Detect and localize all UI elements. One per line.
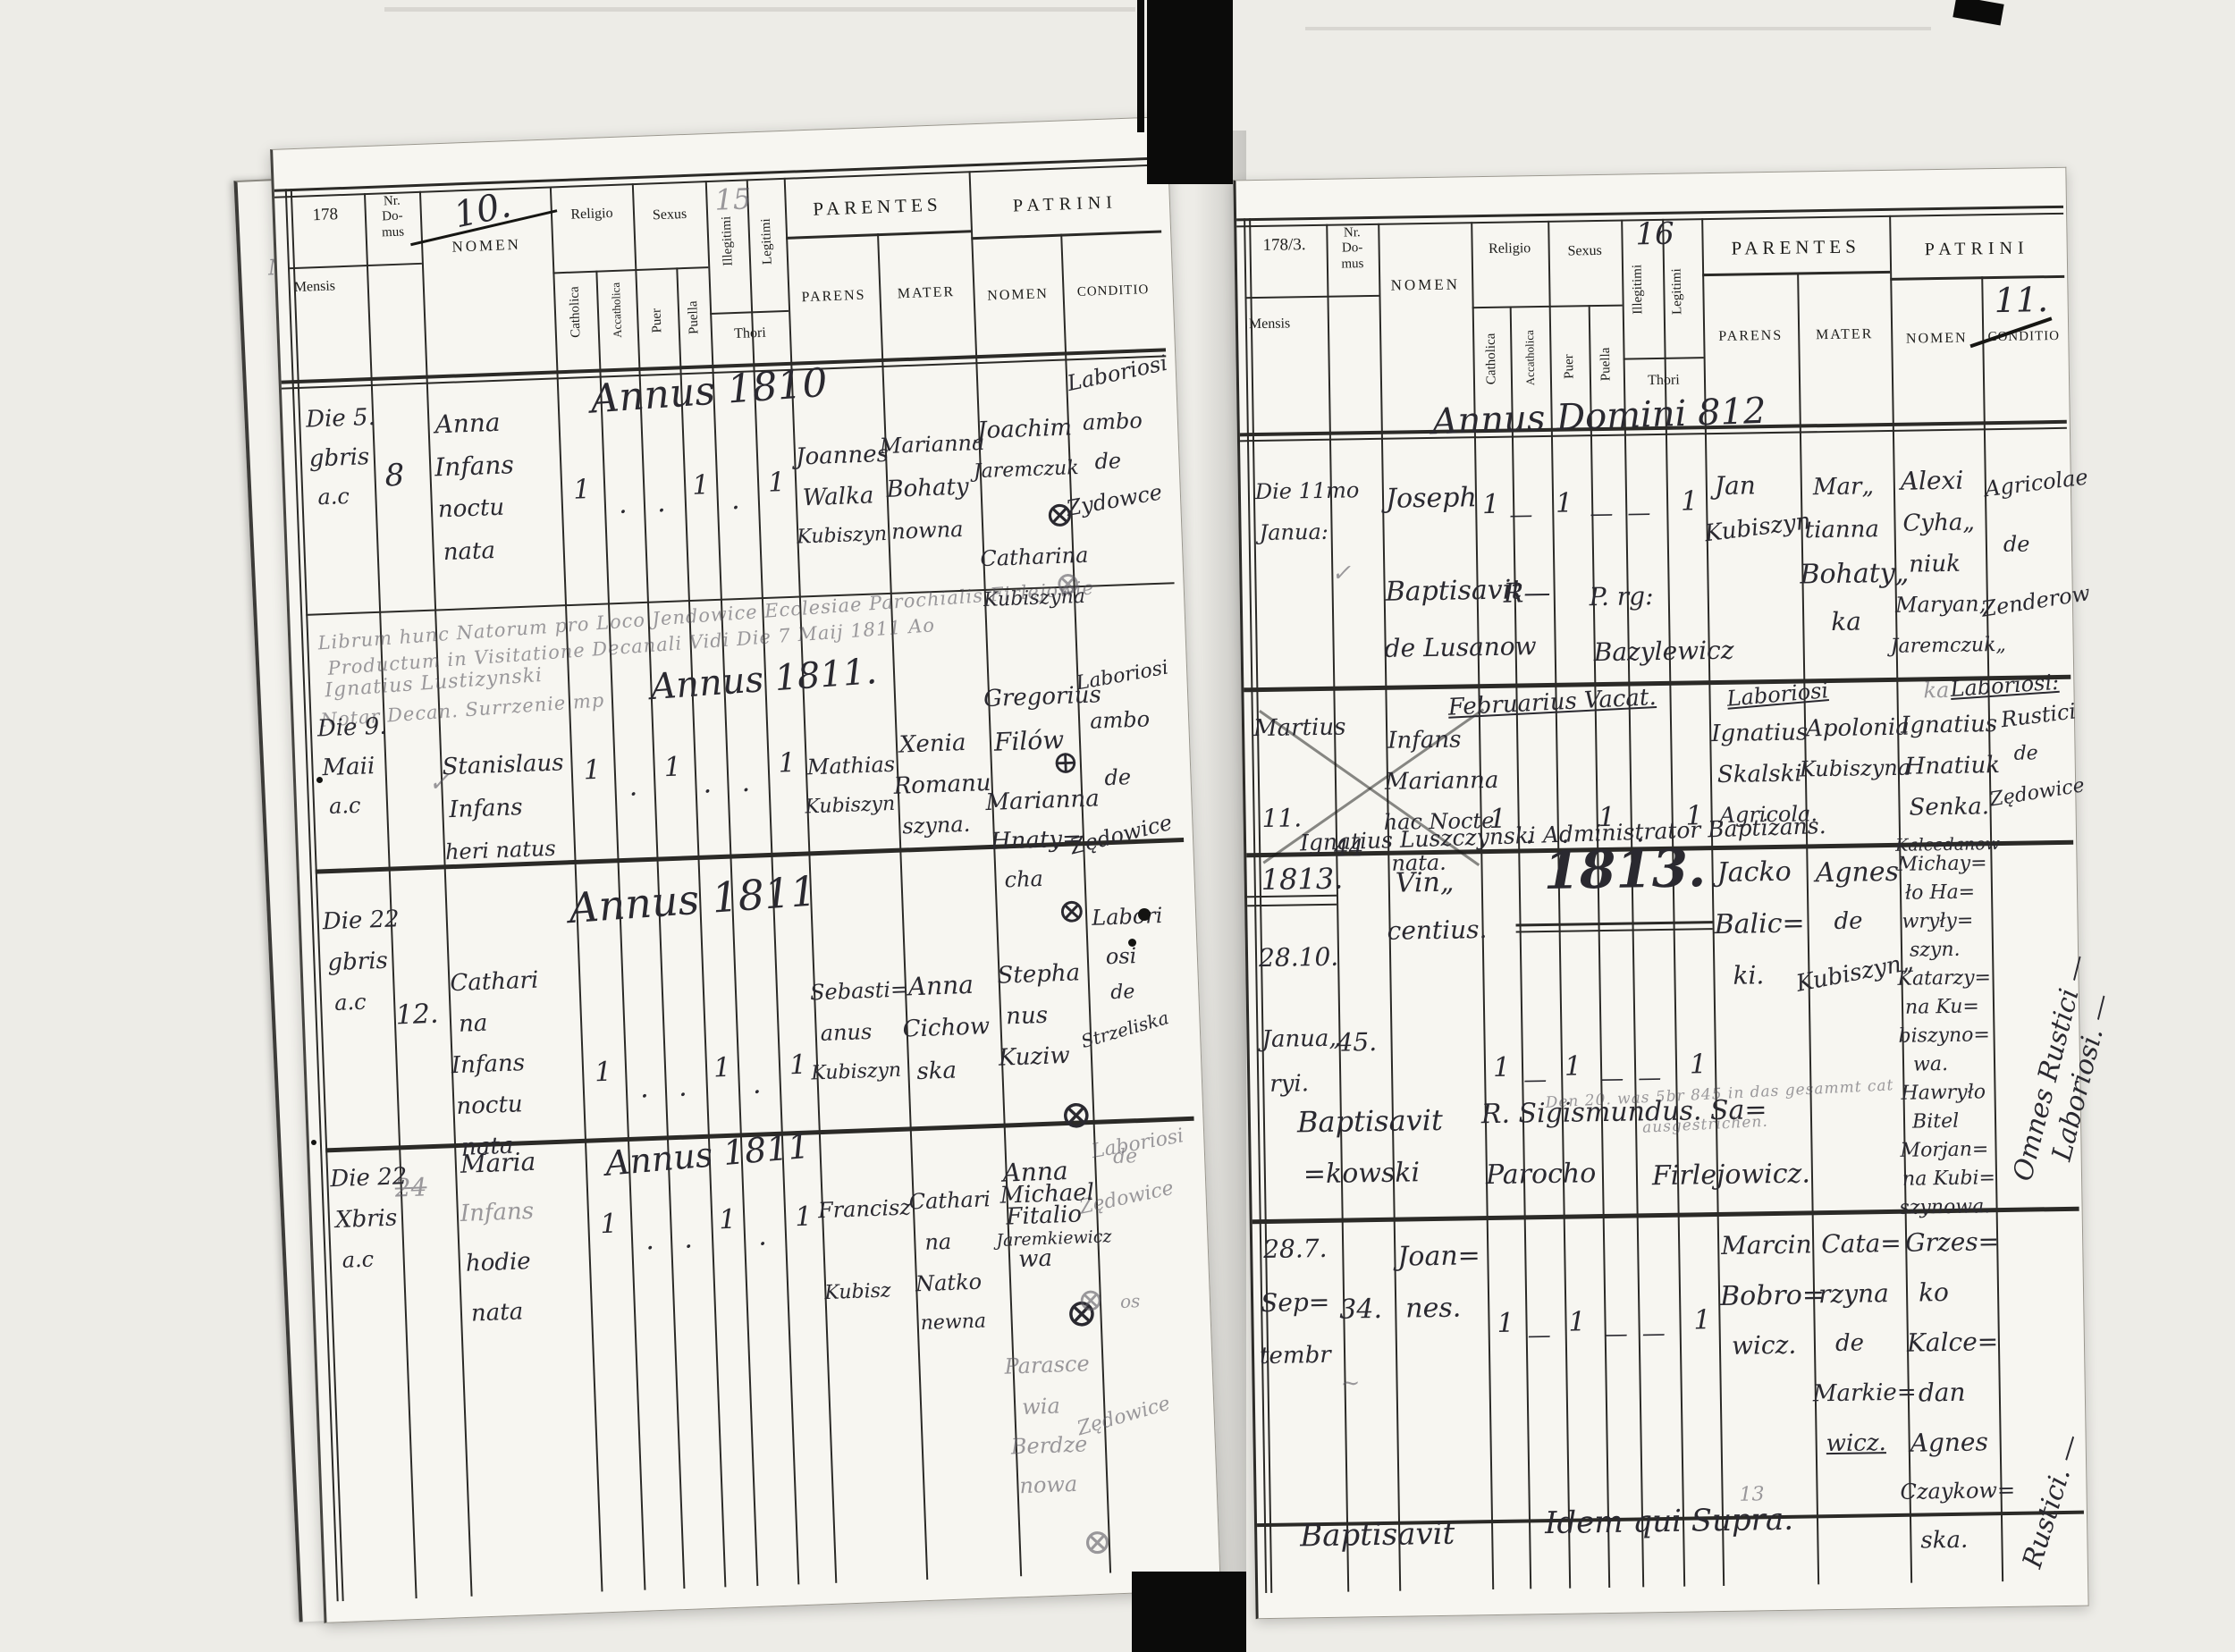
child-name: nata [471, 1300, 524, 1325]
tick-mark: — [1627, 501, 1650, 525]
tick-mark: 1 [1690, 1051, 1708, 1078]
year-heading: Annus 1811 [603, 1129, 811, 1181]
conditio-note: osi [1105, 945, 1136, 967]
tick-mark: — [1590, 502, 1613, 526]
child-name: Anna [434, 410, 501, 438]
entry-date: Maii [322, 754, 375, 780]
conditio-note: Laboriosi [1090, 1126, 1185, 1162]
child-name: Cathari [450, 969, 539, 996]
mother-name: Anna [907, 973, 974, 1000]
mother-name: szyna. [902, 813, 971, 838]
spine-black-strip-top [1147, 0, 1233, 184]
house-number: 8 [384, 460, 405, 492]
father-name: anus [820, 1021, 872, 1044]
month-vacat-note: Februarius Vacat. [1447, 686, 1657, 720]
godparent-name: Morjan= [1900, 1140, 1988, 1161]
tick-mark: . [758, 1223, 768, 1250]
tick-mark: — [1523, 1068, 1547, 1091]
tick-mark: . [730, 487, 740, 514]
entry-date: 11. [1261, 805, 1302, 831]
mother-name: tianna [1804, 518, 1879, 542]
godparent-name: Berdze [1010, 1433, 1087, 1457]
child-name: hodie [465, 1250, 531, 1276]
priest-note: de Lusanow [1384, 634, 1536, 662]
godparent-name: cha [1004, 868, 1043, 891]
father-name: Sebasti= [810, 978, 909, 1003]
entry-date: a.c [329, 795, 361, 817]
entry-date: 28.7. [1263, 1236, 1328, 1262]
tick-mark: — [1638, 1066, 1661, 1090]
mother-name: ska [916, 1059, 957, 1084]
conditio-note: ambo [1090, 708, 1151, 731]
child-name: Vin„ [1396, 870, 1455, 898]
conditio-note: Labori [1092, 905, 1163, 929]
crossed-circle-mark: ⊗ [1076, 1285, 1104, 1318]
tick-mark: — [1528, 1324, 1551, 1347]
year-heading: Annus 1811 [568, 870, 818, 929]
conditio-note: Zędowice [1075, 1395, 1173, 1440]
father-name: Jan [1715, 473, 1756, 499]
father-name: Bobro= [1720, 1282, 1825, 1311]
mother-name: Cichow [902, 1015, 990, 1041]
priest-note: P. rg: [1590, 584, 1654, 610]
crossed-circle-mark: ⊗ [1082, 1523, 1113, 1560]
entry-date: Die 5. [306, 406, 376, 432]
left-page-ink-layer: 10.15Annus 1810Die 5.gbrisa.c8AnnaInfans… [273, 117, 1220, 1622]
mother-name: newna [920, 1311, 986, 1334]
priest-note: Baptisavit [1300, 1519, 1455, 1552]
entry-date: Die 11mo [1255, 479, 1360, 502]
godparent-name: biszyno= [1898, 1025, 1990, 1047]
entry-date: Janua„ [1261, 1027, 1341, 1051]
entry-date: Die 22 [322, 907, 400, 933]
conditio-note: de [1094, 450, 1121, 472]
tick-mark: 1 [1681, 488, 1699, 515]
register-right-page: 178/3. Nr. Do- mus Religio Sexus PARENTE… [1233, 167, 2088, 1619]
year-heading: Annus Domini 812 [1431, 393, 1767, 440]
entry-date: a.c [342, 1249, 374, 1271]
godparent-name: Stepha [997, 961, 1080, 987]
child-name: heri natus [445, 838, 556, 864]
tick-mark: — [1642, 1322, 1666, 1345]
conditio-note: de [1110, 982, 1135, 1003]
mother-name: Xenia [899, 731, 966, 757]
godparent-name: Joachim [977, 416, 1073, 442]
mother-name: de [1834, 909, 1862, 932]
stray-text: ~ [1340, 1371, 1360, 1395]
priest-note: =kowski [1303, 1159, 1421, 1188]
entry-date: Sep= [1261, 1290, 1330, 1316]
tick-mark: 1 [719, 1207, 737, 1235]
entry-date: gbris [308, 445, 369, 470]
ink-dot [311, 1140, 316, 1145]
child-name: Joan= [1397, 1243, 1480, 1270]
godparent-name: nowa [1019, 1473, 1078, 1496]
mother-name: Cata= [1821, 1231, 1902, 1257]
tick-mark: . [684, 1226, 694, 1252]
mother-name: Kubiszyna [1800, 757, 1911, 780]
child-name: nata [443, 539, 495, 564]
father-name: Kubiszyn [811, 1061, 901, 1084]
tick-mark: . [656, 490, 666, 517]
father-name: Kubiszyn [1703, 510, 1811, 545]
father-name: Jacko [1716, 859, 1791, 887]
page-mark: 13 [1739, 1485, 1764, 1504]
tick-mark: — [1509, 503, 1532, 527]
conditio-note: de [1104, 766, 1131, 788]
father-name: Kubiszyn [805, 795, 895, 818]
entry-date: a.c [334, 991, 367, 1014]
priest-note: R— [1503, 580, 1550, 608]
entry-date: 28.10. [1259, 945, 1338, 971]
conditio-note: os [1120, 1292, 1141, 1311]
tick-mark: 1 [713, 1055, 731, 1083]
father-name: Joannes [796, 442, 890, 469]
folio-number-handwritten: 16 [1635, 219, 1674, 250]
entry-date: a.c [317, 485, 350, 508]
child-name: Stanislaus [442, 751, 564, 779]
godparent-name: Ignatius [1901, 712, 1997, 737]
child-name: Infans [460, 1200, 534, 1226]
scan-smudge [384, 7, 1135, 12]
child-name: noctu [456, 1092, 523, 1118]
father-name: Ignatius [1711, 721, 1808, 746]
child-name: Maria [460, 1150, 536, 1177]
mother-name: Apolonia [1806, 716, 1910, 741]
godparent-name: Hnatiuk [1905, 754, 2001, 779]
child-name: noctu [438, 496, 505, 522]
tick-mark: 1 [1493, 1055, 1511, 1082]
house-number: 45. [1337, 1030, 1377, 1056]
godparent-name: szyn. [1910, 940, 1961, 961]
mother-name: Romanu [893, 771, 991, 798]
check-mark: ✓ [1331, 561, 1351, 585]
godparent-name: ska. [1920, 1529, 1968, 1553]
tick-mark: 1 [778, 750, 796, 778]
godparent-name: Marianna [985, 787, 1100, 814]
godparent-name: Jaremczuk [973, 459, 1078, 482]
tick-mark: 1 [1556, 490, 1573, 517]
father-name: Marcin [1721, 1232, 1812, 1259]
godparent-name: szynowa. [1899, 1197, 1990, 1218]
mother-name: Natko [915, 1271, 983, 1295]
father-name: Walka [802, 484, 873, 510]
ink-dot [1138, 908, 1151, 921]
entry-date: tembr [1260, 1344, 1331, 1368]
tick-mark: . [628, 773, 638, 800]
spine-black-line-top [1137, 0, 1144, 132]
mother-name: Agnes [1815, 859, 1899, 887]
godparent-name: nus [1006, 1004, 1049, 1029]
child-name: Infans [449, 796, 523, 822]
priest-note: Idem qui Supra. [1545, 1504, 1793, 1538]
tick-mark: 1 [1568, 1309, 1586, 1336]
conditio-note: Rustici [2000, 700, 2078, 730]
house-number-crossed: 24 [394, 1175, 427, 1201]
child-name: nes. [1405, 1295, 1461, 1323]
entry-date: gbris [327, 949, 388, 974]
father-name: Kubisz [824, 1281, 891, 1303]
godparent-name: Michay= [1897, 854, 1986, 875]
child-name: na [459, 1012, 488, 1036]
father-name: Skalski [1717, 763, 1802, 787]
godparent-name: Jaremkiewicz [996, 1228, 1112, 1250]
godparent-name: niuk [1909, 552, 1961, 577]
crossed-circle-mark: ⊗ [1054, 568, 1082, 601]
godparent-name: Bitel [1912, 1112, 1959, 1133]
right-page-ink-layer: 1611.Annus Domini 812Die 11moJanua:✓Jose… [1236, 168, 2087, 1618]
house-number: 34. [1339, 1296, 1382, 1324]
tick-mark: 1 [595, 1059, 612, 1087]
year-heading: Annus 1810 [589, 364, 829, 420]
year-heading: 1813. [1543, 842, 1707, 897]
godparent-name: Alexi [1901, 468, 1964, 494]
tick-mark: . [618, 492, 628, 518]
godparent-name: wa [1018, 1247, 1053, 1271]
godparent-name: Senka. [1909, 795, 1989, 819]
priest-note: Parocho [1486, 1160, 1597, 1189]
godparent-name: Cyha„ [1902, 510, 1975, 535]
child-name: Infans [1387, 728, 1462, 752]
father-name: Kubiszyn [797, 525, 887, 548]
tick-mark: . [752, 1072, 762, 1099]
godparent-name: Kalce= [1907, 1329, 1999, 1356]
conditio-note: Agricolae [1984, 466, 2089, 500]
tick-mark: 1 [789, 1052, 807, 1080]
mother-name: wicz. [1826, 1431, 1886, 1455]
father-name: ki. [1733, 963, 1764, 989]
priest-note: Baptisavit [1297, 1106, 1443, 1137]
scan-smudge [1305, 27, 1931, 30]
folio-number-handwritten: 11. [1994, 282, 2048, 317]
child-name: Infans [451, 1051, 525, 1077]
mother-name: de [1835, 1331, 1864, 1354]
godparent-name: ło Ha= [1905, 882, 1975, 903]
register-left-page: 178 Nr. Do- mus Religio Sexus PARENTES P… [270, 116, 1221, 1623]
mother-name: Mar„ [1813, 475, 1874, 499]
conditio-note: ambo [1082, 409, 1143, 433]
godparent-name: Michael [999, 1181, 1094, 1208]
tick-mark: . [741, 770, 751, 796]
godparent-name: Hawryło [1901, 1083, 1986, 1103]
tick-mark: 1 [573, 476, 591, 504]
entry-date: ryi. [1269, 1072, 1309, 1096]
scanned-register-spread: 1MDe7/a12gDieMaa.2g 178 Nr. Do- mus Reli… [0, 0, 2235, 1652]
tick-mark: . [703, 771, 713, 797]
child-name: Joseph [1386, 485, 1477, 513]
conditio-note: de [2013, 744, 2037, 763]
priest-note: Baptisavit [1385, 577, 1522, 605]
conditio-note: Rustici. — [2020, 1431, 2086, 1571]
tick-mark: — [1605, 1323, 1628, 1346]
godparent-name: Gregorius [983, 683, 1102, 711]
father-name: Balic= [1714, 910, 1805, 939]
crossed-circle-mark: ⊗ [1059, 1095, 1093, 1135]
tick-mark: . [639, 1075, 649, 1102]
tick-mark: 1 [600, 1211, 618, 1239]
tick-mark: 1 [768, 469, 786, 497]
year-heading: Annus 1811. [649, 653, 878, 705]
godparent-name: Kuziw [998, 1044, 1070, 1070]
house-number: 12. [395, 1001, 439, 1030]
father-name: Mathias [806, 754, 895, 779]
tick-mark: . [645, 1227, 655, 1254]
mother-name: Bohaty„ [1800, 560, 1909, 589]
mother-name: nowna [891, 518, 964, 543]
father-name: wicz. [1732, 1333, 1797, 1359]
tick-mark: 1 [1564, 1053, 1582, 1080]
conditio-note: Strzeliska [1079, 1008, 1170, 1050]
godparent-name: na Kubi= [1902, 1168, 1995, 1190]
ink-dot [316, 777, 323, 783]
godparent-name: Grzes= [1905, 1229, 1999, 1256]
godparent-name: Czaykow= [1900, 1479, 2015, 1503]
godparent-name: dan [1919, 1380, 1966, 1406]
tick-mark: 1 [663, 754, 681, 782]
spine-black-strip-bottom [1132, 1572, 1246, 1652]
godparent-name: na Ku= [1905, 997, 1979, 1017]
crossed-circle-mark: ⊗ [1057, 893, 1086, 928]
conditio-note: Zędowice [1068, 812, 1175, 858]
mother-name: Cathari [908, 1188, 991, 1212]
godparent-name: Maryan„ [1895, 593, 1990, 616]
conditio-note: Laboriosi [1726, 679, 1829, 710]
father-name: Francisz [818, 1196, 912, 1221]
godparent-name: Parasce [1004, 1353, 1090, 1377]
scan-corner-mark [1952, 0, 2003, 26]
ink-dot [1128, 939, 1136, 947]
tick-mark: . [678, 1075, 687, 1101]
conditio-note: Zydowce [1065, 481, 1164, 519]
tick-mark: 1 [1693, 1307, 1711, 1334]
year-heading: 1813. [1261, 864, 1343, 894]
priest-note: R. Sigismundus. Sa= [1481, 1097, 1767, 1128]
entry-date: Die 9. [316, 715, 387, 741]
tick-mark: 1 [1482, 492, 1500, 518]
mother-name: na [924, 1231, 952, 1253]
mother-name: Marianna [879, 432, 984, 457]
mother-name: Bohaty [886, 476, 969, 501]
godparent-name: Agnes [1910, 1429, 1988, 1455]
conditio-note: Zędowice [1988, 776, 2086, 810]
entry-date: Xbris [335, 1207, 398, 1233]
entry-date: Janua: [1259, 521, 1328, 544]
mother-name: ka [1831, 609, 1861, 635]
godparent-name: wa. [1913, 1055, 1948, 1075]
tick-mark: 1 [795, 1204, 813, 1232]
godparent-name: Jaremczuk„ [1891, 636, 2006, 657]
priest-note: Bazylewicz [1594, 638, 1734, 665]
godparent-name: wia [1022, 1395, 1060, 1419]
mother-name: rzyna [1818, 1281, 1889, 1307]
tick-mark: 1 [1497, 1311, 1514, 1337]
child-name: Infans [434, 452, 515, 480]
conditio-note: Laboriosi: [1950, 671, 2060, 700]
stray-text: ka [1923, 679, 1949, 701]
tick-mark: 1 [583, 757, 601, 785]
conditio-note: Laboriosi [1066, 352, 1169, 394]
tick-mark: — [1600, 1067, 1624, 1091]
mother-name: Markie= [1813, 1381, 1917, 1406]
godparent-name: Katarzy= [1897, 968, 1991, 990]
priest-note: Firlejowicz. [1652, 1160, 1810, 1190]
conditio-note: Zenderow [1980, 582, 2092, 620]
folio-number-handwritten: 10. [451, 187, 514, 233]
conditio-note: de [2003, 533, 2030, 554]
tick-mark: 1 [692, 472, 710, 500]
godparent-name: ko [1919, 1280, 1949, 1306]
godparent-name: wryły= [1902, 912, 1973, 932]
child-name: centius. [1387, 917, 1487, 944]
crossed-circle-mark: ⊕ [1051, 746, 1079, 780]
entry-date: Martius [1253, 716, 1346, 741]
child-name: Marianna [1385, 769, 1499, 794]
folio-number-pencil: 15 [714, 184, 752, 214]
